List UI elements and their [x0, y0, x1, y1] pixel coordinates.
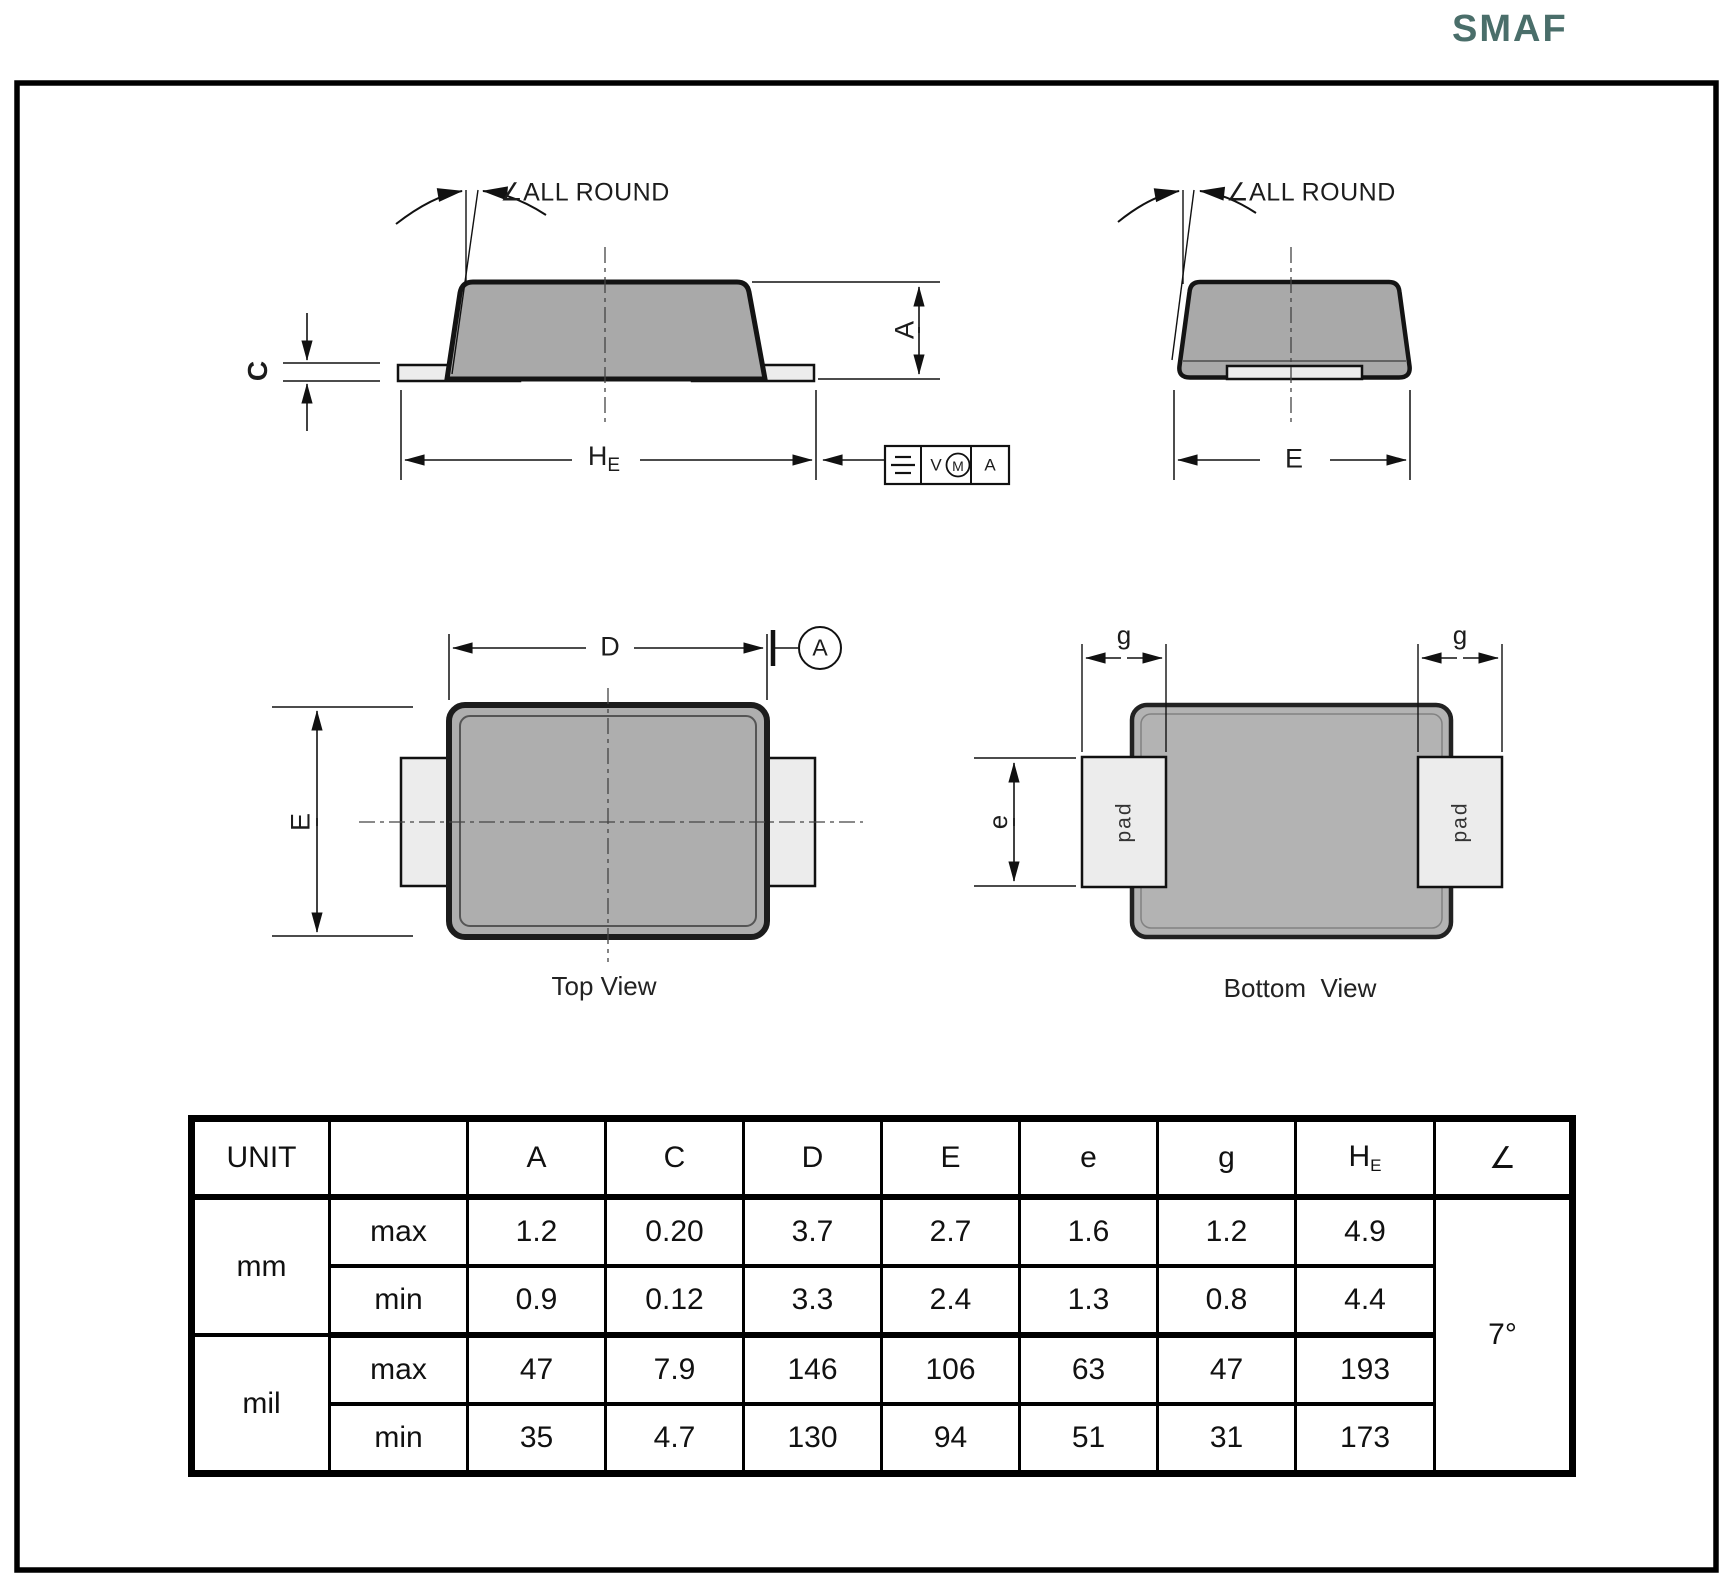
value-cell: 146 — [744, 1335, 882, 1404]
value-cell: 1.3 — [1020, 1266, 1158, 1335]
value-cell: 0.12 — [606, 1266, 744, 1335]
header-col-e-big: E — [882, 1119, 1020, 1198]
header-limit — [330, 1119, 468, 1198]
header-col-d: D — [744, 1119, 882, 1198]
table-row-mil-min: min 35 4.7 130 94 51 31 173 — [192, 1404, 1573, 1474]
dim-label-he: HE — [588, 443, 620, 475]
dim-label-g-right: g — [1453, 622, 1467, 648]
dim-label-d: D — [600, 634, 620, 661]
table-row-mm-max: mm max 1.2 0.20 3.7 2.7 1.6 1.2 4.9 7° — [192, 1197, 1573, 1266]
datum-label-a: A — [812, 637, 827, 660]
value-cell: 4.4 — [1296, 1266, 1435, 1335]
dim-label-g-left: g — [1117, 622, 1131, 648]
value-cell: 3.7 — [744, 1197, 882, 1266]
value-cell: 63 — [1020, 1335, 1158, 1404]
header-col-a: A — [468, 1119, 606, 1198]
header-col-he: HE — [1296, 1119, 1435, 1198]
value-cell: 31 — [1158, 1404, 1296, 1474]
side-angle-note: ∠ALL ROUND — [500, 181, 670, 206]
limit-cell: max — [330, 1197, 468, 1266]
end-package-body — [1179, 282, 1409, 378]
he-col-main: H — [1348, 1140, 1370, 1173]
dim-label-a: A — [892, 321, 919, 339]
bottom-package-body — [1132, 705, 1451, 937]
value-cell: 0.8 — [1158, 1266, 1296, 1335]
bottom-view-caption: Bottom View — [1224, 975, 1377, 1001]
limit-cell: min — [330, 1266, 468, 1335]
dim-label-c: C — [244, 361, 272, 381]
value-cell: 4.7 — [606, 1404, 744, 1474]
header-col-angle: ∠ — [1435, 1119, 1573, 1198]
header-col-g: g — [1158, 1119, 1296, 1198]
datasheet-page: SMAF ∠ALL ROUND C A HE V M A ∠ALL ROUND … — [0, 0, 1732, 1581]
value-cell: 3.3 — [744, 1266, 882, 1335]
end-pad — [1227, 366, 1362, 379]
value-cell: 2.4 — [882, 1266, 1020, 1335]
value-cell: 1.6 — [1020, 1197, 1158, 1266]
value-cell: 0.9 — [468, 1266, 606, 1335]
top-view-caption: Top View — [551, 973, 656, 999]
header-unit: UNIT — [192, 1119, 330, 1198]
fcf-tolerance-value: V — [930, 457, 941, 474]
value-cell: 47 — [1158, 1335, 1296, 1404]
value-cell: 193 — [1296, 1335, 1435, 1404]
he-subscript: E — [607, 455, 620, 476]
value-cell: 106 — [882, 1335, 1020, 1404]
value-cell: 51 — [1020, 1404, 1158, 1474]
side-package-body — [447, 282, 765, 379]
table-row-mil-max: mil max 47 7.9 146 106 63 47 193 — [192, 1335, 1573, 1404]
top-view — [272, 627, 863, 962]
value-cell: 94 — [882, 1404, 1020, 1474]
he-col-subscript: E — [1370, 1156, 1381, 1175]
bottom-view — [974, 644, 1502, 937]
value-cell: 4.9 — [1296, 1197, 1435, 1266]
header-col-c: C — [606, 1119, 744, 1198]
limit-cell: max — [330, 1335, 468, 1404]
limit-cell: min — [330, 1404, 468, 1474]
header-col-e-small: e — [1020, 1119, 1158, 1198]
value-cell: 2.7 — [882, 1197, 1020, 1266]
value-cell: 173 — [1296, 1404, 1435, 1474]
table-header-row: UNIT A C D E e g HE ∠ — [192, 1119, 1573, 1198]
fcf-datum-ref: A — [984, 457, 995, 474]
dimension-table: UNIT A C D E e g HE ∠ mm max 1.2 0.20 3.… — [188, 1115, 1576, 1477]
fcf-material-modifier: M — [952, 459, 964, 473]
unit-mm-cell: mm — [192, 1197, 330, 1335]
dim-label-e-small: e — [985, 815, 1011, 829]
value-cell: 47 — [468, 1335, 606, 1404]
value-cell: 35 — [468, 1404, 606, 1474]
value-cell: 130 — [744, 1404, 882, 1474]
value-cell: 1.2 — [1158, 1197, 1296, 1266]
value-cell: 7.9 — [606, 1335, 744, 1404]
dim-label-e-top: E — [288, 813, 315, 831]
end-angle-note: ∠ALL ROUND — [1226, 181, 1396, 206]
end-view — [1118, 190, 1410, 480]
unit-mil-cell: mil — [192, 1335, 330, 1474]
angle-arc-left — [396, 191, 462, 224]
pad-label-right: pad — [1450, 801, 1471, 842]
angle-arc-left — [1118, 191, 1179, 222]
value-cell: 1.2 — [468, 1197, 606, 1266]
page-title: SMAF — [1452, 8, 1568, 51]
table-row-mm-min: min 0.9 0.12 3.3 2.4 1.3 0.8 4.4 — [192, 1266, 1573, 1335]
angle-value-cell: 7° — [1435, 1197, 1573, 1474]
value-cell: 0.20 — [606, 1197, 744, 1266]
dim-label-e-end: E — [1285, 446, 1303, 473]
he-main: H — [588, 441, 608, 471]
pad-label-left: pad — [1114, 801, 1135, 842]
